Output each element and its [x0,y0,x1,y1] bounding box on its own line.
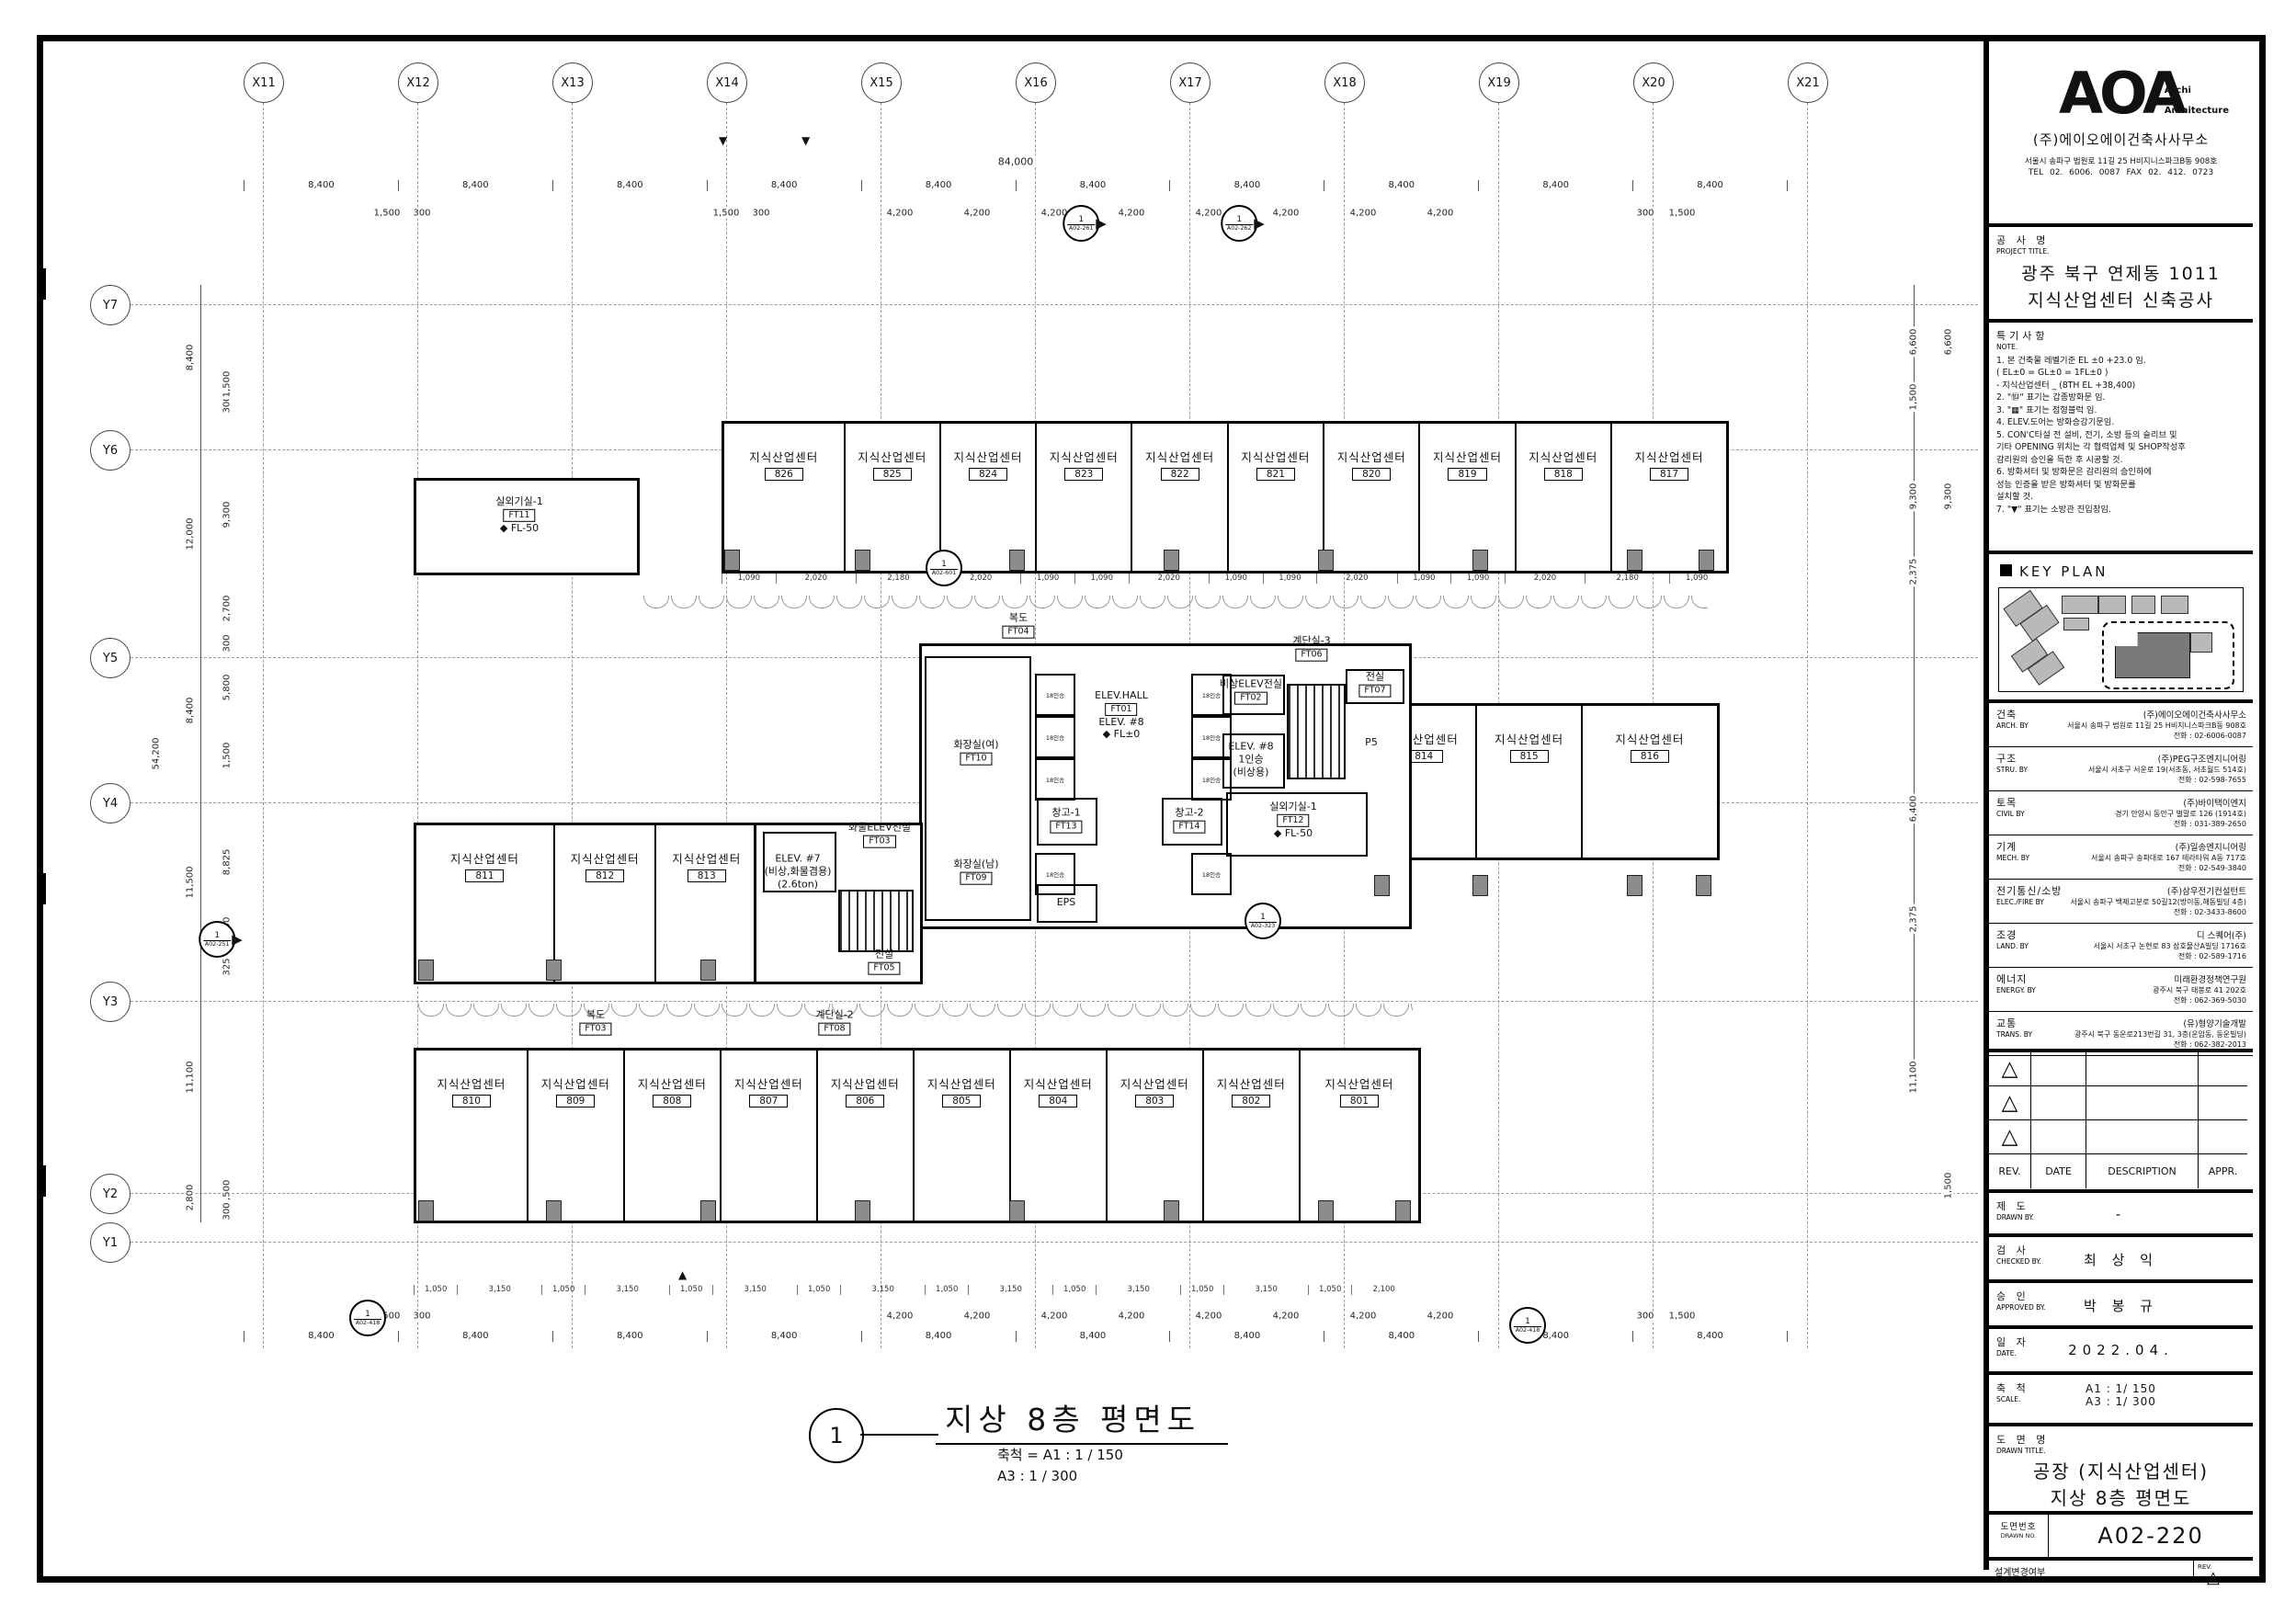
dim-text: 4,200 [1117,1312,1147,1322]
dim-text: 1,050 [541,1285,585,1295]
keyplan-building [2131,596,2155,614]
consultant-row: 토목 CIVIL BY (주)바이택이엔지 경기 안양시 동안구 벌말로 126… [1989,791,2253,835]
grid-bubble-y: Y1 [90,1222,131,1263]
core-room-label: 비상ELEV전실FT02 [1220,678,1282,705]
dim-text: 8,400 [186,696,196,726]
dim-text: 9,300 [222,500,233,530]
window-arc [1526,596,1552,608]
window-arc [1135,1004,1161,1017]
dim-text: 8,400 [1324,1331,1478,1342]
date-value: 2022.04. [1989,1342,2253,1358]
detail-marker-number: 1 [1236,215,1242,224]
room-label: 지식산업센터 [1495,730,1563,747]
dim-text: 6,600 [1909,327,1919,358]
dim-text: 1,050 [1180,1285,1223,1295]
core-room-label: 실외기실-1FT12◆ FL-50 [1269,801,1316,839]
grid-bubble-label: X16 [1016,62,1056,103]
dim-text: 8,400 [861,1331,1016,1342]
room-label: 지식산업센터 [437,1074,506,1092]
room-number: 817 [1650,468,1688,481]
grid-bubble-label: X11 [244,62,284,103]
keyplan-building [2190,632,2212,653]
room-label: 지식산업센터 [831,1074,900,1092]
fire-access-icon: ▼ [801,134,810,147]
room-label: 지식산업센터 [450,849,519,867]
tb-scale: 축 척SCALE. A1 : 1/ 150 A3 : 1/ 300 [1989,1375,2253,1426]
room-number: 801 [1340,1095,1379,1108]
consultant-phone: 전화 : 062-369-5030 [2174,995,2246,1005]
column [1472,875,1488,896]
elevator-car: 18인승 [1035,716,1075,758]
room-label: 지식산업센터 [1324,1074,1393,1092]
dim-text: 9,300 [1909,482,1919,512]
room-number: 823 [1064,468,1103,481]
detail-marker-number: 1 [365,1310,370,1319]
revision-cell [2031,1052,2086,1086]
core-room-label: 복도FT03 [579,1009,611,1036]
window-arc [809,596,835,608]
consultant-address: 경기 안양시 동안구 벌말로 126 (1914호) [2115,809,2246,819]
dim-text: 2,020 [776,574,856,584]
window-arc [1333,596,1358,608]
window-arc [694,1004,720,1017]
grid-bubble-label: Y2 [90,1174,131,1214]
elevator-car: 18인승 [1191,758,1232,801]
approved-by-value: 박 봉 규 [1989,1296,2253,1315]
dim-text: 1,050 [1308,1285,1351,1295]
grid-bubble-x: X11 [244,62,284,103]
revision-header-date: DATE [2031,1154,2086,1188]
grid-bubble-label: X21 [1788,62,1828,103]
dim-text: 11,100 [186,1060,196,1096]
core-room-label: 전실FT05 [868,948,900,975]
column [1627,550,1642,571]
core-room-label: 실외기실-1FT11◆ FL-50 [495,495,542,534]
dim-text: 8,400 [552,1331,707,1342]
grid-bubble-label: X13 [552,62,593,103]
window-arc [1388,596,1414,608]
checked-by-value: 최 상 익 [1989,1250,2253,1269]
consultant-row: 전기통신/소방 ELEC./FIRE BY (주)삼우전기컨설턴트 서울시 송파… [1989,880,2253,924]
window-arc [1636,596,1662,608]
drawing-title: 공장 (지식산업센터) 지상 8층 평면도 [1989,1459,2253,1512]
corridor-top-windows [643,596,1708,608]
grid-line-vertical [1807,103,1808,1348]
dim-text: 8,400 [1169,180,1324,191]
tb-drawing-number: 도면번호 DRAWN NO. A02-220 [1989,1515,2253,1561]
dim-text: 2,020 [1129,574,1209,584]
dim-text: 2,180 [1585,574,1669,584]
tb-consultants: 건축 ARCH. BY (주)에이오에이건축사사무소 서울시 송파구 법원로 1… [1989,703,2253,1052]
room: 지식산업센터 813 [654,825,756,982]
column [1318,1200,1334,1221]
window-arc [974,596,1000,608]
detail-marker-number: 1 [1525,1317,1530,1326]
room-number: 820 [1352,468,1391,481]
stair-2 [838,890,914,952]
consultant-firm: (주)바이택이엔지 [2183,796,2246,809]
dim-text: 5,800 [222,673,233,703]
dim-text: 8,400 [1169,1331,1324,1342]
window-arc [1108,1004,1133,1017]
dim-text: 300 [750,209,771,219]
room-number: 812 [585,869,624,882]
room-number: 809 [556,1095,595,1108]
room-label: 지식산업센터 [1217,1074,1286,1092]
tb-project-section: 공 사 명 PROJECT TITLE. 광주 북구 연제동 1011 지식산업… [1989,227,2253,323]
room-number: 805 [942,1095,981,1108]
window-arc [699,596,724,608]
dim-text: 2,375 [1909,557,1919,587]
dim-text: 2,375 [1909,904,1919,935]
window-arc [997,1004,1023,1017]
dim-text: 4,200 [962,209,993,219]
window-arc [1057,596,1083,608]
window-arc [1278,596,1303,608]
keyplan-building [2063,618,2089,630]
consultant-firm: (주)일송엔지니어링 [2176,840,2246,853]
window-arc [1471,596,1496,608]
dim-text: 8,400 [1478,180,1632,191]
dim-text: 300 [1634,209,1655,219]
window-arc [1218,1004,1244,1017]
window-arc [1085,596,1110,608]
keyplan-building [2098,596,2126,614]
window-arc [1029,596,1055,608]
room-label: 지식산업센터 [541,1074,610,1092]
grid-bubble-label: Y7 [90,285,131,325]
window-arc [749,1004,775,1017]
room-number: 806 [846,1095,884,1108]
room: 지식산업센터 808 [623,1051,720,1221]
grid-line-horizontal [131,1001,1978,1002]
detail-marker: 1 A02-601 [926,550,959,586]
consultant-firm: (주)PEG구조엔지니어링 [2158,752,2246,765]
plan-caption-scale: 축척 = A1 : 1 / 150 A3 : 1 / 300 [997,1445,1123,1486]
binding-mark [37,873,46,904]
dim-text: 1,500 [711,209,742,219]
grid-bubble-label: X12 [398,62,438,103]
consultant-row: 조경 LAND. BY 디 스퀘어(주) 서울시 서초구 논현로 83 삼호물산… [1989,924,2253,968]
dim-text: 325 [222,956,233,977]
window-arc [1112,596,1138,608]
dim-text: 1,500 [1667,209,1698,219]
project-label-kr: 공 사 명 [1989,227,2253,247]
plan-caption-title: 지상 8층 평면도 [936,1395,1228,1445]
window-arc [1025,1004,1051,1017]
dim-text: 8,400 [1632,1331,1788,1342]
dim-text: 8,400 [186,343,196,373]
title-block: AOA Archi of Architecture (주)에이오에이건축사사무소… [1983,41,2253,1570]
window-arc [1664,596,1689,608]
window-arc [418,1004,444,1017]
dim-text: 8,400 [1016,180,1170,191]
consultant-row: 구조 STRU. BY (주)PEG구조엔지니어링 서울시 서초구 서운로 19… [1989,747,2253,791]
elevator-car: 18인승 [1191,853,1232,895]
tb-revision-table: △ △ △ REV. DATE DESCRIPTION APPR. [1989,1052,2253,1193]
tb-note-section: 특기사항 NOTE. 1. 본 건축물 레벨기준 EL ±0 +23.0 임. … [1989,323,2253,554]
window-arc [1608,596,1634,608]
dim-overall-top: 84,000 [996,156,1036,168]
dim-text: 54,200 [152,736,162,772]
grid-line-horizontal [131,304,1978,305]
room-label: 지식산업센터 [571,849,640,867]
room-label: 지식산업센터 [1529,448,1597,465]
room-label: 지식산업센터 [1145,448,1214,465]
room-number: 825 [873,468,912,481]
column [1164,1200,1179,1221]
window-arc [643,596,669,608]
section-arrow-icon: ▶ [232,931,243,948]
detail-marker-ref: A02-261 [1067,224,1096,233]
room: 지식산업센터 818 [1515,424,1610,571]
dim-text: 4,200 [885,209,915,219]
grid-bubble-label: Y4 [90,783,131,824]
corridor-bottom-windows [418,1004,1413,1017]
room-number: 822 [1161,468,1199,481]
dim-text: 4,200 [1040,1312,1070,1322]
note-label-kr: 특기사항 [1989,323,2253,343]
drawing-number: A02-220 [2049,1515,2253,1557]
room-label: 지식산업센터 [1615,730,1684,747]
window-arc [859,1004,885,1017]
core-room-label: 화물ELEV전실FT03 [848,822,911,848]
dim-text: 4,200 [962,1312,993,1322]
dim-text: 1,090 [722,574,776,584]
room-number: 803 [1135,1095,1174,1108]
consultant-phone: 전화 : 02-549-3840 [2178,863,2246,873]
window-arc [1080,1004,1106,1017]
room-band-bottom: 지식산업센터 810 지식산업센터 809 지식산업센터 808 지식산업센터 … [414,1048,1421,1223]
grid-bubble-x: X14 [707,62,747,103]
dim-text: 4,200 [885,1312,915,1322]
note-list: 1. 본 건축물 레벨기준 EL ±0 +23.0 임. ( EL±0 = GL… [1989,351,2253,516]
consultant-firm: 미래환경정책연구원 [2174,972,2246,985]
core-room-label: 화장실(남)FT09 [953,858,998,885]
keyplan-building [2062,596,2098,614]
dim-text: 8,400 [707,1331,861,1342]
room: 지식산업센터 822 [1131,424,1226,571]
dim-text: 8,400 [244,180,398,191]
grid-line-horizontal [131,1242,1978,1243]
grid-bubble-x: X20 [1633,62,1674,103]
tb-keyplan-section: KEY PLAN [1989,554,2253,703]
detail-marker: 1 A02-251 ▶ [199,921,243,958]
dim-text: 3,150 [712,1285,797,1295]
room: 지식산업센터 826 [724,424,844,571]
column [1374,875,1390,896]
detail-marker-number: 1 [941,560,947,569]
window-arc [1052,1004,1078,1017]
consultant-row: 에너지 ENERGY. BY 미래환경정책연구원 광주시 북구 태봉로 41 2… [1989,968,2253,1012]
window-arc [1222,596,1248,608]
grid-bubble-label: X14 [707,62,747,103]
revision-cell [2199,1052,2247,1086]
dim-text: 300 [222,1200,233,1221]
detail-marker-ref: A02-601 [930,569,959,577]
detail-marker-number: 1 [1260,913,1266,922]
grid-bubble-label: Y6 [90,430,131,471]
dim-text: 1,050 [414,1285,457,1295]
room-number: 824 [969,468,1007,481]
core-room-label: 화장실(여)FT10 [953,739,998,766]
consultant-firm: (유)형양기술개발 [2183,1017,2246,1029]
project-title: 광주 북구 연제동 1011 지식산업센터 신축공사 [1989,261,2253,313]
drawing-sheet: X11 X12 X13 X14 X15 X16 X17 X18 X19 X2 [0,0,2296,1613]
detail-marker-circle: 1 A02-601 [926,550,962,586]
tb-drawing-title: 도 면 명DRAWN TITLE. 공장 (지식산업센터) 지상 8층 평면도 [1989,1426,2253,1515]
grid-bubble-label: X20 [1633,62,1674,103]
dim-text: 1,500 [1909,382,1919,413]
revision-header-description: DESCRIPTION [2086,1154,2199,1188]
revision-triangle: △ [1989,1052,2031,1086]
grid-bubble-label: X18 [1324,62,1365,103]
room-label: 지식산업센터 [927,1074,996,1092]
dim-text: 8,400 [1016,1331,1170,1342]
detail-marker-circle: 1 A02-262 [1221,205,1257,242]
room-label: 지식산업센터 [1241,448,1310,465]
column [1395,1200,1411,1221]
dim-text: 8,400 [398,180,552,191]
room: 지식산업센터 807 [720,1051,816,1221]
grid-bubble-x: X16 [1016,62,1056,103]
dim-text: 8,400 [1632,180,1788,191]
room: 지식산업센터 825 [844,424,939,571]
window-arc [1383,1004,1409,1017]
keyplan-building [2161,596,2188,614]
window-arc [611,1004,637,1017]
window-arc [1167,596,1193,608]
detail-marker-circle: 1 A02-418 [349,1300,386,1336]
window-arc [1195,596,1221,608]
window-arc [639,1004,665,1017]
core-room-label: 전실FT07 [1358,671,1391,698]
window-arc [864,596,890,608]
core-room-label: ELEV. #7(비상,화물겸용)(2.6ton) [765,852,832,890]
tb-logo-section: AOA Archi of Architecture (주)에이오에이건축사사무소… [1989,41,2253,227]
dim-text: 1,500 [222,369,233,400]
room-number: 815 [1510,750,1549,763]
dim-text: 3,150 [1223,1285,1308,1295]
detail-marker-circle: 1 A02-251 [199,921,235,958]
room-number: 808 [653,1095,691,1108]
window-arc [1190,1004,1216,1017]
core-room-label: ELEV. #81인승(비상용) [1228,740,1273,778]
dim-text: 1,050 [1052,1285,1096,1295]
core-room-label: 복도FT04 [1002,612,1034,639]
window-arc [1328,1004,1354,1017]
dim-text: 1,500 [372,209,403,219]
consultant-phone: 전화 : 031-389-2650 [2174,819,2246,829]
detail-marker-ref: A02-323 [1249,922,1278,930]
dim-text: 4,200 [1426,1312,1456,1322]
project-label-en: PROJECT TITLE. [1989,247,2253,256]
core-room-label: 계단실-2FT08 [815,1009,853,1036]
detail-marker: 1 A02-262 ▶ [1221,205,1265,242]
grid-bubble-label: X15 [861,62,902,103]
column [1696,875,1711,896]
room: 지식산업센터 809 [527,1051,623,1221]
consultant-address: 광주시 북구 태봉로 41 202호 [2153,985,2246,995]
consultant-row: 건축 ARCH. BY (주)에이오에이건축사사무소 서울시 송파구 법원로 1… [1989,703,2253,747]
window-arc [1553,596,1579,608]
window-arc [722,1004,747,1017]
revision-triangle: △ [1989,1086,2031,1120]
column [1472,550,1488,571]
grid-bubble-x: X19 [1479,62,1519,103]
room-label: 지식산업센터 [858,448,926,465]
consultant-firm: (주)삼우전기컨설턴트 [2167,884,2246,897]
elevator-car: 18인승 [1035,758,1075,801]
elevator-car: 18인승 [1035,853,1075,895]
scale-value: A1 : 1/ 150 A3 : 1/ 300 [1989,1382,2253,1408]
dim-text: 2,800 [186,1183,196,1213]
room-label: 지식산업센터 [672,849,741,867]
elevator-car: 18인승 [1035,674,1075,716]
consultant-address: 서울시 송파구 송파대로 167 테라타워 A동 717호 [2091,853,2246,863]
dim-text: 4,200 [1348,209,1379,219]
revision-cell [2086,1052,2199,1086]
consultant-phone: 전화 : 02-3433-8600 [2174,907,2246,917]
grid-bubble-x: X13 [552,62,593,103]
dim-text: 4,200 [1194,209,1224,219]
grid-bubble-x: X21 [1788,62,1828,103]
room-band-midright: 지식산업센터 814 지식산업센터 815 지식산업센터 816 [1370,703,1720,860]
consultant-row: 기계 MECH. BY (주)일송엔지니어링 서울시 송파구 송파대로 167 … [1989,835,2253,880]
grid-bubble-label: X17 [1170,62,1211,103]
room-number: 821 [1256,468,1295,481]
detail-marker-ref: A02-418 [1514,1326,1542,1335]
detail-marker-number: 1 [214,931,220,940]
revision-triangle: △ [1989,1120,2031,1154]
window-arc [947,596,972,608]
grid-bubble-y: Y4 [90,783,131,824]
column [1699,550,1714,571]
dim-text: 2,020 [1505,574,1585,584]
detail-marker-circle: 1 A02-323 [1245,903,1281,939]
dim-text: 1,090 [1450,574,1505,584]
window-arc [1305,596,1331,608]
window-arc [1273,1004,1299,1017]
dim-text: 8,400 [707,180,861,191]
window-arc [1163,1004,1188,1017]
column [1009,550,1025,571]
consultant-phone: 전화 : 02-598-7655 [2178,775,2246,785]
dim-text: 1,090 [1263,574,1317,584]
dim-text: 2,020 [1316,574,1396,584]
column [1164,550,1179,571]
window-arc [781,596,807,608]
detail-marker-ref: A02-262 [1225,224,1254,233]
dim-text: 4,200 [1348,1312,1379,1322]
dim-row-bottom: 8,4008,4008,4008,4008,4008,4008,4008,400… [244,1331,1788,1342]
dim-text: 300 [1634,1312,1655,1322]
dim-text: 3,150 [968,1285,1052,1295]
room-number: 804 [1039,1095,1077,1108]
window-arc [1415,596,1441,608]
room: 지식산업센터 803 [1106,1051,1202,1221]
window-arc [1691,596,1708,608]
room-number: 807 [749,1095,788,1108]
room-label: 지식산업센터 [1120,1074,1189,1092]
window-arc [1250,596,1276,608]
grid-bubble-label: X19 [1479,62,1519,103]
window-arc [1245,1004,1271,1017]
dim-text: 1,090 [1209,574,1263,584]
column [1318,550,1334,571]
grid-bubble-x: X15 [861,62,902,103]
dim-text: 2,700 [222,594,233,624]
